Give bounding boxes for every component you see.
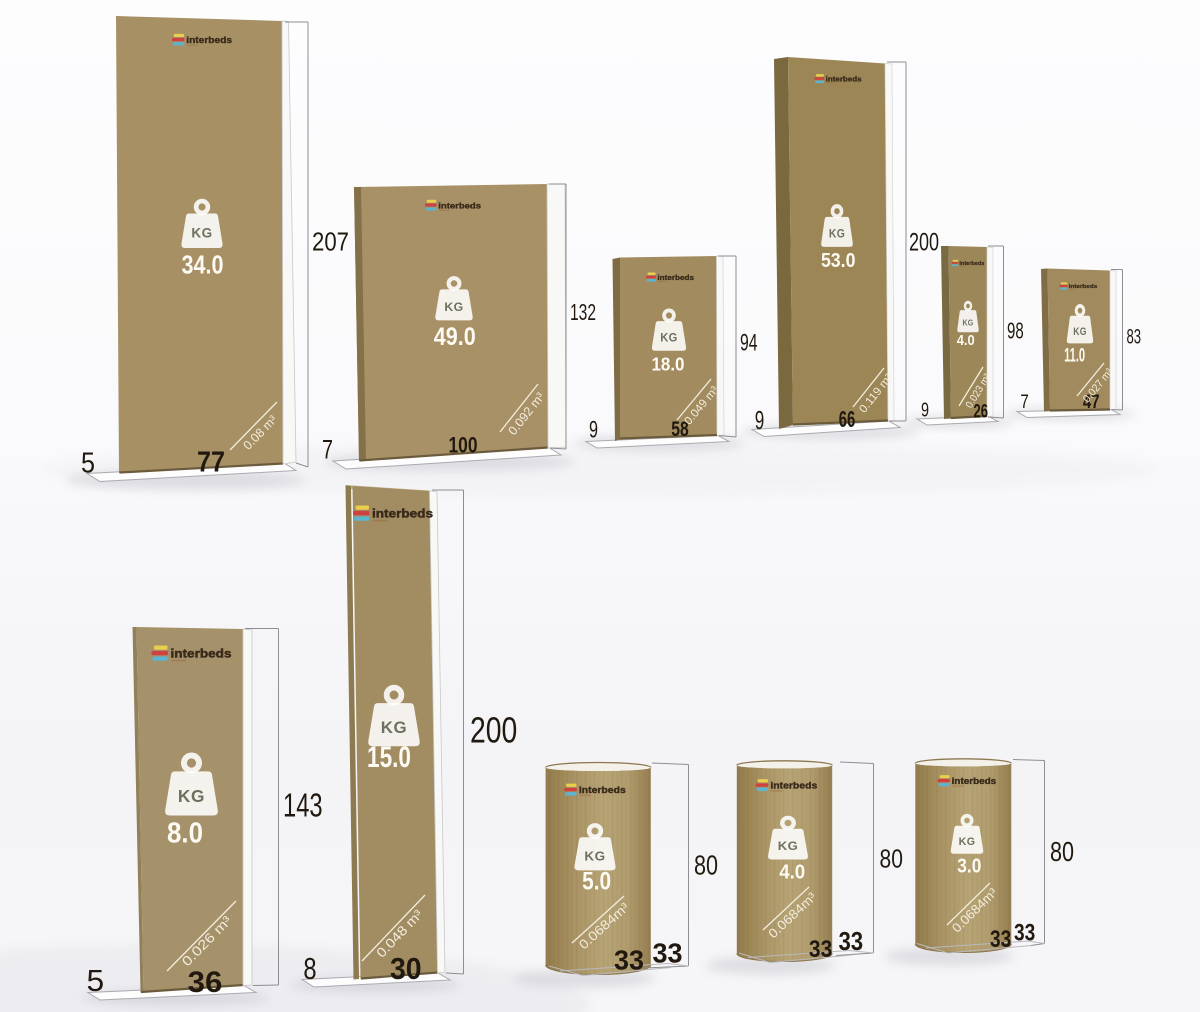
svg-text:KG: KG	[660, 333, 678, 345]
svg-text:80: 80	[1050, 836, 1074, 867]
svg-text:36: 36	[188, 966, 223, 999]
svg-text:3.0: 3.0	[957, 856, 981, 878]
svg-text:49.0: 49.0	[434, 323, 476, 351]
svg-text:98: 98	[1007, 317, 1024, 343]
svg-text:66: 66	[839, 406, 856, 432]
svg-text:KG: KG	[959, 836, 976, 848]
svg-text:interbeds: interbeds	[186, 35, 232, 45]
svg-text:33: 33	[838, 926, 863, 956]
svg-text:KG: KG	[778, 840, 799, 853]
svg-text:200: 200	[470, 710, 517, 751]
svg-text:KG: KG	[191, 226, 212, 241]
svg-text:33: 33	[653, 937, 683, 968]
svg-text:100: 100	[449, 432, 478, 457]
svg-text:KG: KG	[584, 849, 605, 864]
svg-text:15.0: 15.0	[367, 741, 411, 774]
svg-text:207: 207	[312, 226, 349, 256]
svg-text:interbeds: interbeds	[657, 273, 694, 282]
svg-text:interbeds: interbeds	[372, 507, 433, 521]
svg-text:30: 30	[390, 951, 422, 986]
svg-text:interbeds: interbeds	[770, 780, 817, 791]
svg-text:KG: KG	[444, 300, 463, 314]
svg-text:83: 83	[1127, 324, 1142, 348]
svg-text:11.0: 11.0	[1064, 345, 1085, 366]
svg-text:interbeds: interbeds	[438, 200, 481, 210]
svg-text:interbeds: interbeds	[952, 776, 997, 786]
svg-text:8: 8	[303, 951, 316, 986]
svg-text:53.0: 53.0	[821, 250, 856, 272]
svg-text:34.0: 34.0	[182, 249, 224, 279]
svg-text:33: 33	[614, 945, 644, 976]
svg-text:80: 80	[880, 843, 903, 873]
svg-text:4.0: 4.0	[957, 332, 975, 349]
svg-text:9: 9	[589, 417, 598, 444]
svg-text:5: 5	[81, 447, 95, 479]
svg-text:interbeds: interbeds	[579, 784, 626, 795]
svg-text:33: 33	[809, 936, 832, 963]
svg-text:7: 7	[322, 435, 333, 465]
svg-text:8.0: 8.0	[167, 817, 203, 849]
svg-text:KG: KG	[178, 786, 205, 806]
svg-text:KG: KG	[962, 318, 973, 328]
svg-text:7: 7	[1020, 392, 1028, 413]
svg-text:94: 94	[740, 330, 758, 357]
svg-text:KG: KG	[829, 228, 845, 241]
svg-text:9: 9	[755, 405, 765, 435]
svg-text:KG: KG	[1073, 326, 1087, 338]
svg-text:5.0: 5.0	[582, 868, 611, 896]
svg-text:18.0: 18.0	[652, 355, 685, 375]
svg-text:143: 143	[283, 787, 323, 824]
svg-text:77: 77	[197, 446, 225, 478]
svg-text:200: 200	[909, 229, 939, 257]
svg-text:9: 9	[921, 400, 929, 422]
svg-text:33: 33	[990, 926, 1011, 953]
svg-text:4.0: 4.0	[779, 860, 805, 883]
svg-text:interbeds: interbeds	[826, 74, 862, 83]
svg-text:5: 5	[87, 963, 105, 998]
svg-text:interbeds: interbeds	[171, 647, 232, 661]
svg-text:33: 33	[1014, 920, 1035, 947]
svg-text:132: 132	[570, 299, 596, 325]
svg-text:80: 80	[694, 850, 718, 881]
svg-text:KG: KG	[381, 718, 408, 737]
